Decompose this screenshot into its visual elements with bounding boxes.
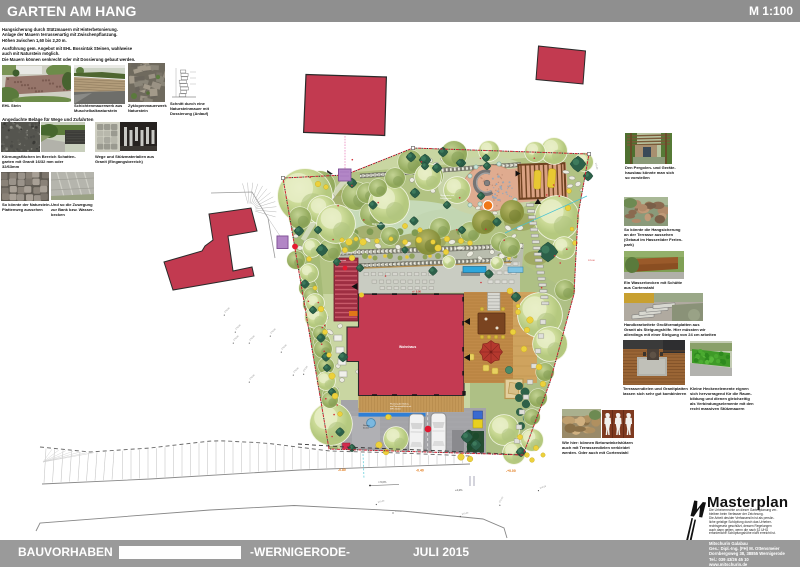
svg-text:+4,2%: +4,2% — [455, 488, 463, 492]
svg-text:WPC Dielen: WPC Dielen — [390, 409, 401, 411]
svg-text:270.00: 270.00 — [540, 486, 548, 490]
svg-text:270.00: 270.00 — [281, 344, 288, 351]
svg-text:270.00: 270.00 — [249, 335, 256, 342]
svg-text:270.00: 270.00 — [303, 365, 309, 372]
svg-text:Obergarten am: Obergarten am — [440, 194, 454, 197]
svg-text:-0.80: -0.80 — [338, 468, 346, 472]
svg-text:-0.40: -0.40 — [416, 469, 424, 473]
svg-text:270.00: 270.00 — [378, 500, 386, 504]
svg-text:270.00: 270.00 — [588, 260, 595, 262]
svg-text:Wohnhaus: Wohnhaus — [399, 345, 416, 349]
svg-text:270.00: 270.00 — [462, 512, 470, 516]
svg-text:+/- 0.00: +/- 0.00 — [412, 290, 421, 294]
svg-text:270.00: 270.00 — [594, 163, 598, 171]
svg-text:270.00: 270.00 — [270, 328, 277, 335]
svg-text:becken: becken — [363, 427, 369, 429]
svg-text:Mährasen: Mährasen — [372, 222, 384, 226]
svg-text:270.00: 270.00 — [233, 335, 240, 342]
svg-text:270.00: 270.00 — [293, 367, 300, 374]
svg-text:-+0.00: -+0.00 — [506, 469, 516, 473]
svg-text:270.00: 270.00 — [235, 324, 242, 331]
svg-text:<-5,0%: <-5,0% — [378, 480, 387, 484]
svg-text:270.00: 270.00 — [249, 374, 256, 381]
svg-text:Rechenstein: Rechenstein — [440, 197, 452, 200]
svg-text:270.00: 270.00 — [499, 496, 504, 503]
svg-text:270.00: 270.00 — [395, 511, 402, 513]
svg-text:270.00: 270.00 — [224, 307, 231, 314]
